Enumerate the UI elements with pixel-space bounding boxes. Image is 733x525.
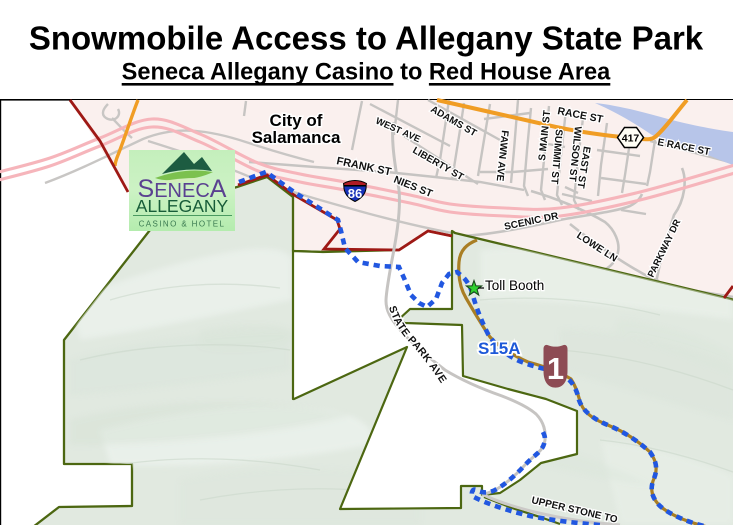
svg-text:Salamanca: Salamanca: [252, 128, 341, 147]
svg-text:CASINO & HOTEL: CASINO & HOTEL: [139, 220, 226, 229]
svg-text:1: 1: [547, 351, 564, 386]
svg-text:Snowmobile Access to Allegany: Snowmobile Access to Allegany State Park: [29, 20, 704, 57]
svg-text:Toll Booth: Toll Booth: [485, 278, 544, 293]
svg-text:Seneca Allegany Casino to Red: Seneca Allegany Casino to Red House Area: [122, 60, 612, 86]
svg-text:86: 86: [348, 186, 362, 201]
svg-text:417: 417: [622, 133, 640, 145]
svg-text:S15A: S15A: [478, 339, 521, 358]
svg-text:ALLEGANY: ALLEGANY: [136, 196, 229, 216]
